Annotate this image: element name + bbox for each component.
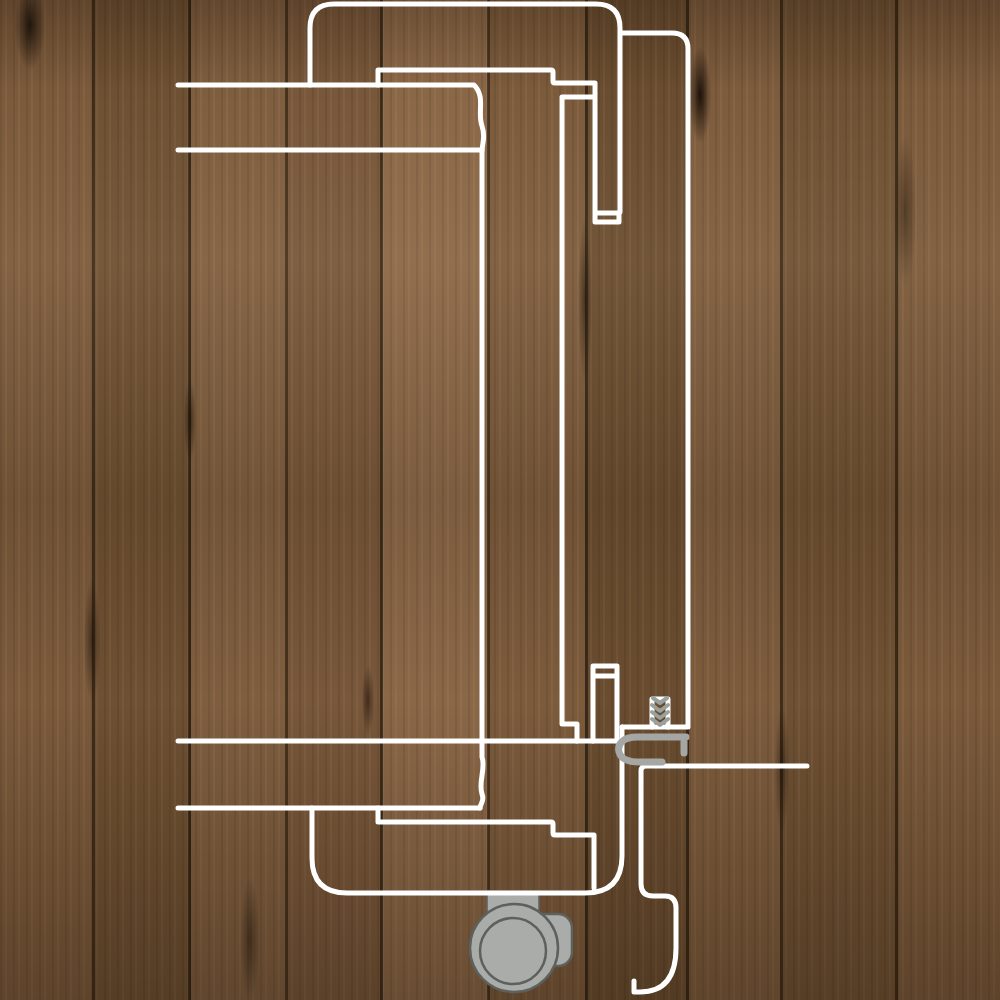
bottom-frame-post [593,666,617,741]
roller-housing-line [634,766,807,992]
side-panel-outline [622,33,688,727]
top-track-inner-profile [562,97,594,741]
top-track-profile [378,70,619,222]
wall-section-break-line [178,85,484,808]
door-panel-outline-top [310,4,620,212]
section-diagram [0,0,1000,1000]
floor-guide-profile [619,737,686,762]
bottom-track-profile [378,808,594,888]
diagram-stage [0,0,1000,1000]
